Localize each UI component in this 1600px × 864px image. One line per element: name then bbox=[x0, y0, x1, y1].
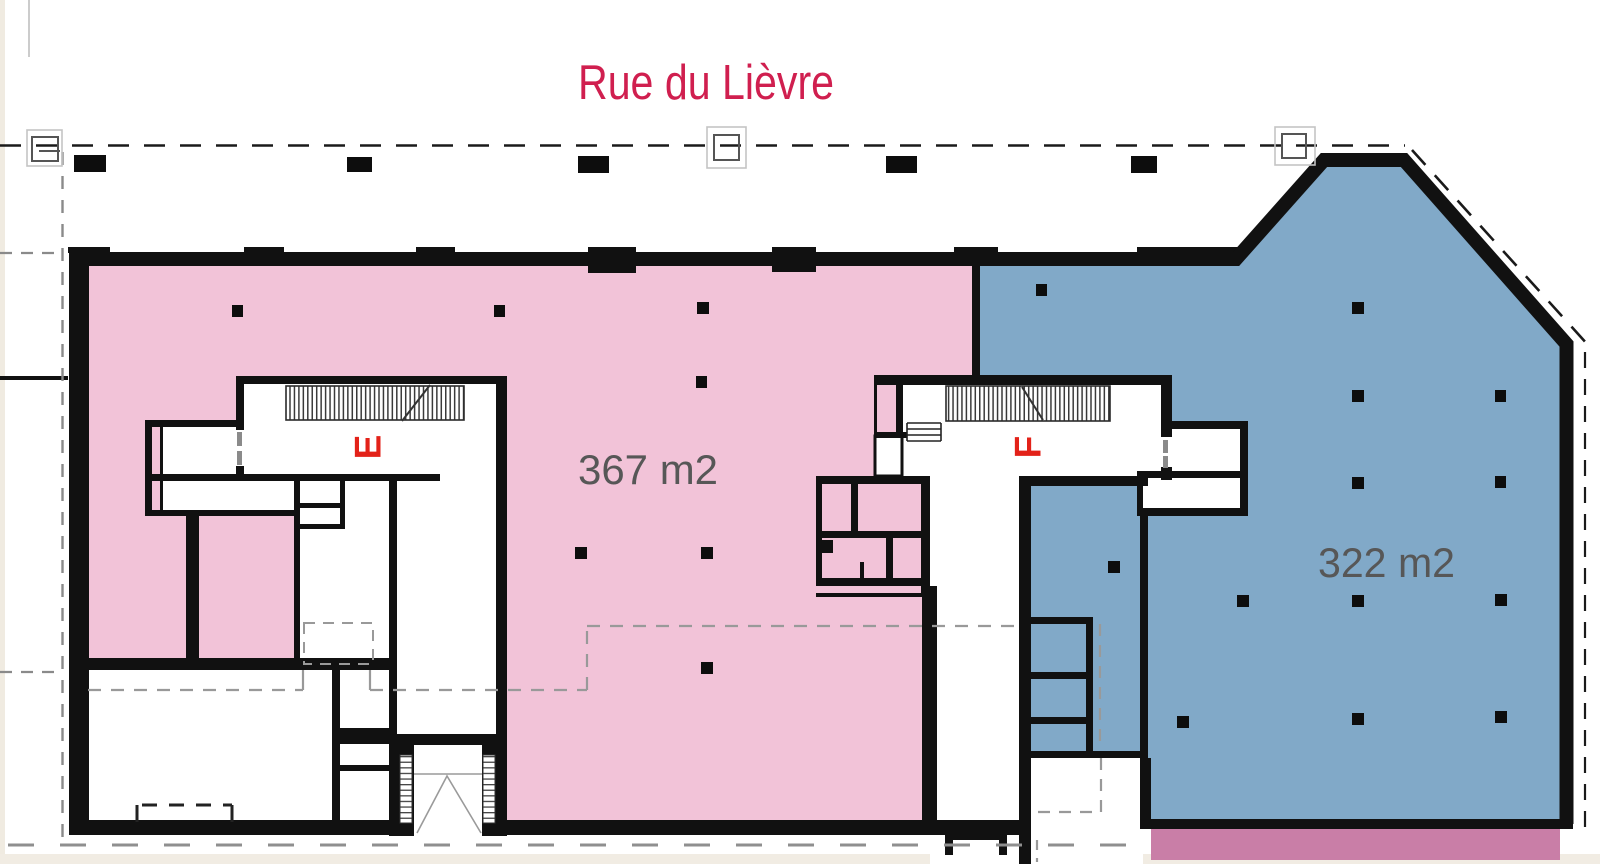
svg-text:367 m2: 367 m2 bbox=[578, 446, 718, 493]
svg-text:322 m2: 322 m2 bbox=[1318, 539, 1455, 586]
svg-text:E: E bbox=[348, 435, 389, 460]
svg-text:F: F bbox=[1008, 436, 1049, 459]
svg-text:Rue du Lièvre: Rue du Lièvre bbox=[578, 56, 834, 110]
